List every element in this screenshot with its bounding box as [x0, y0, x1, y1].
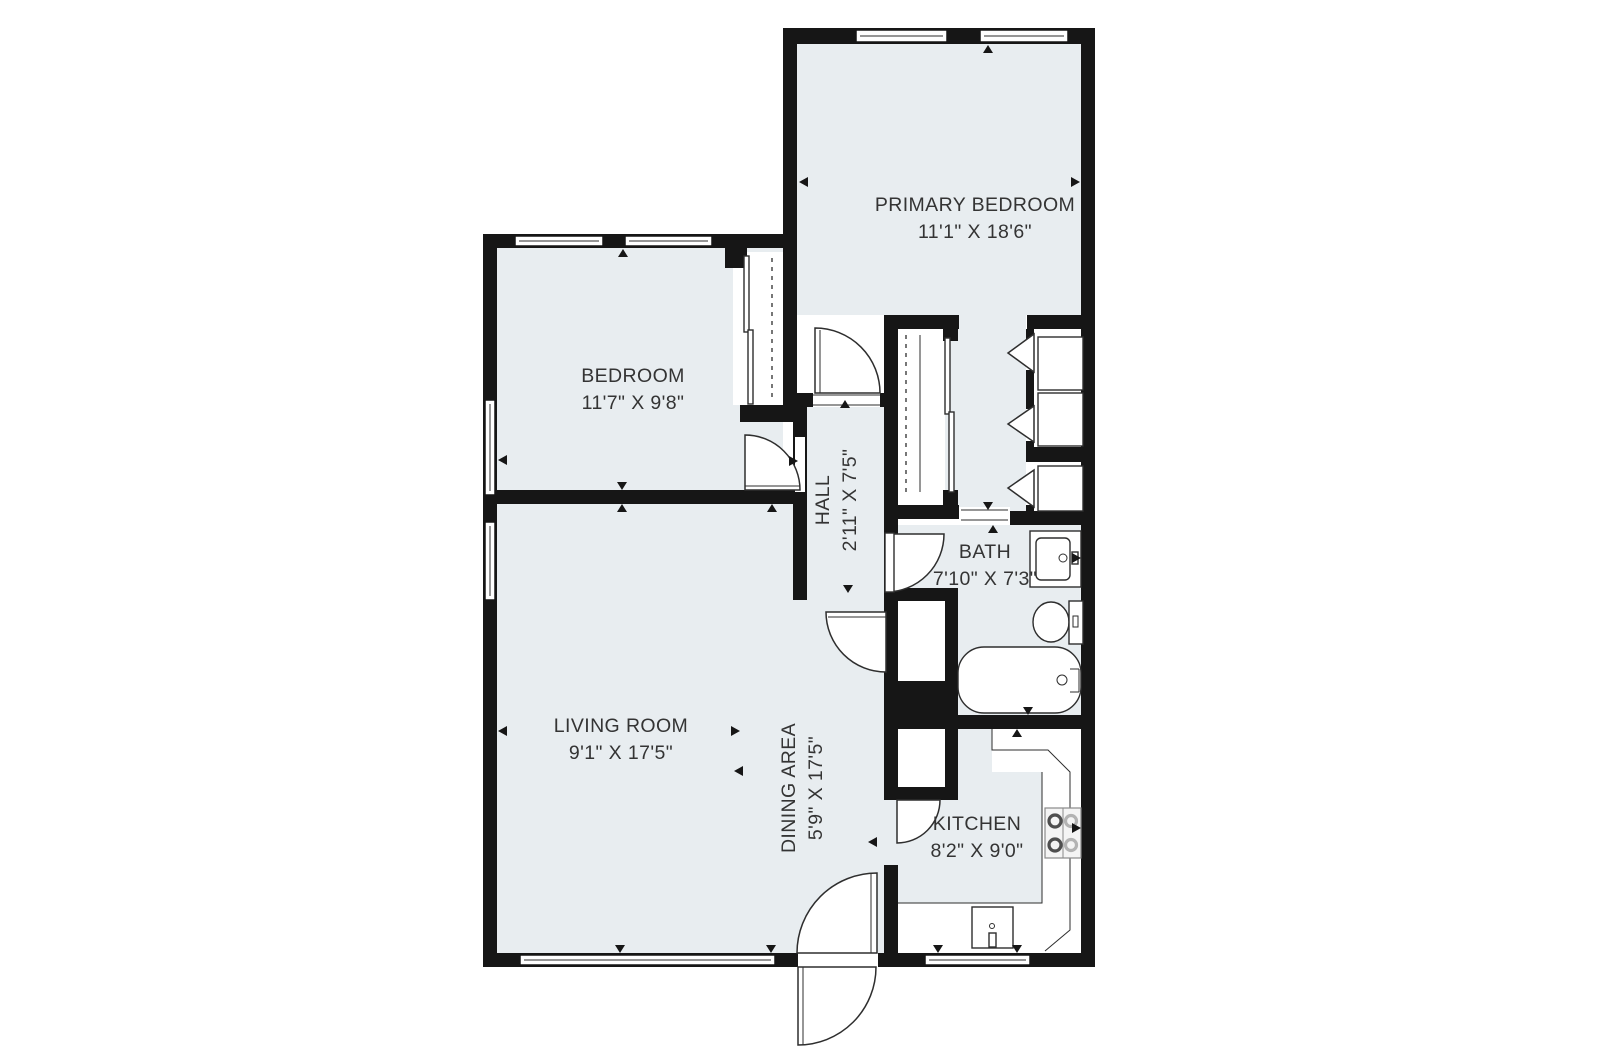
room-name: DINING AREA — [776, 723, 803, 853]
room-dims: 5'9" X 17'5" — [803, 723, 830, 853]
sliding-door-panel — [744, 256, 749, 332]
kitchen-sink — [972, 907, 1013, 948]
room-dims: 2'11" X 7'5" — [837, 449, 864, 552]
floorplan-page: PRIMARY BEDROOM 11'1" X 18'6" BEDROOM 11… — [0, 0, 1600, 1054]
room-name: KITCHEN — [931, 811, 1024, 838]
label-bath: BATH 7'10" X 7'3" — [933, 539, 1037, 593]
sliding-door-panel — [949, 412, 954, 492]
hall-closet-interior — [898, 329, 945, 505]
toilet — [1033, 601, 1083, 644]
label-primary-bedroom: PRIMARY BEDROOM 11'1" X 18'6" — [875, 192, 1075, 246]
window-primary-2 — [980, 30, 1068, 42]
bathtub — [958, 647, 1081, 713]
primary-bedroom-floor — [797, 44, 1081, 315]
primary-closets — [1008, 334, 1083, 511]
room-dims: 9'1" X 17'5" — [554, 740, 688, 767]
label-kitchen: KITCHEN 8'2" X 9'0" — [931, 811, 1024, 865]
closet-shelf-box — [1038, 337, 1083, 390]
label-bedroom: BEDROOM 11'7" X 9'8" — [581, 363, 685, 417]
room-dims: 7'10" X 7'3" — [933, 566, 1037, 593]
room-dims: 11'7" X 9'8" — [581, 390, 685, 417]
window-primary-1 — [856, 30, 947, 42]
opening-entry-door — [798, 953, 878, 967]
room-dims: 11'1" X 18'6" — [875, 219, 1075, 246]
dining-closet-interior — [898, 601, 945, 681]
primary-bedroom-door — [815, 328, 880, 393]
stove-cooktop — [1045, 808, 1081, 858]
closet-shelf-box — [1038, 466, 1083, 511]
window-bedroom-1 — [515, 236, 603, 246]
floorplan-drawing — [0, 0, 1600, 1054]
room-name: BEDROOM — [581, 363, 685, 390]
room-name: BATH — [933, 539, 1037, 566]
closet-shelf-box — [1038, 393, 1083, 446]
window-living-bottom — [520, 955, 775, 965]
label-hall: HALL 2'11" X 7'5" — [810, 449, 864, 552]
label-dining-area: DINING AREA 5'9" X 17'5" — [776, 723, 830, 853]
window-living-left — [485, 522, 495, 600]
sliding-door-panel — [748, 330, 753, 404]
room-name: HALL — [810, 449, 837, 552]
window-bedroom-2 — [625, 236, 712, 246]
room-name: LIVING ROOM — [554, 713, 688, 740]
room-dims: 8'2" X 9'0" — [931, 838, 1024, 865]
sliding-door-panel — [945, 338, 950, 414]
bedroom-closet-interior — [733, 252, 783, 405]
window-bedroom-left — [485, 400, 495, 495]
room-name: PRIMARY BEDROOM — [875, 192, 1075, 219]
window-kitchen-bottom — [925, 955, 1030, 965]
opening-walkway-to-bath — [959, 507, 1010, 523]
label-living-room: LIVING ROOM 9'1" X 17'5" — [554, 713, 688, 767]
pantry-interior — [898, 729, 945, 787]
